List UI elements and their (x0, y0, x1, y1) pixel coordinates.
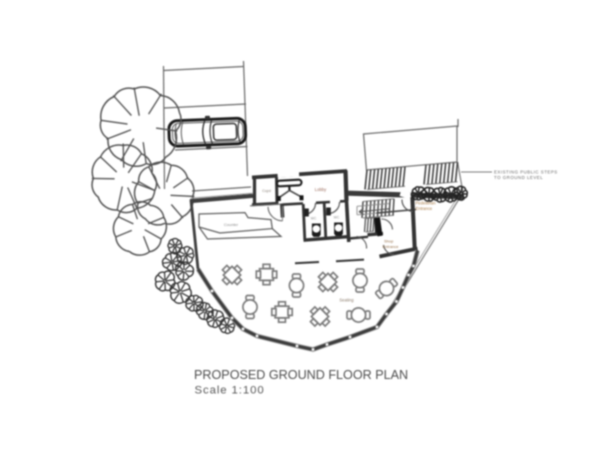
svg-text:WC: WC (334, 216, 340, 220)
svg-text:WC: WC (311, 217, 317, 221)
svg-text:Counter: Counter (224, 222, 239, 227)
svg-text:Entrance: Entrance (416, 206, 433, 211)
svg-text:Seating: Seating (339, 298, 354, 303)
svg-text:TO GROUND LEVEL: TO GROUND LEVEL (494, 175, 543, 180)
svg-text:Entrance: Entrance (383, 244, 400, 249)
svg-text:EXISTING PUBLIC STEPS: EXISTING PUBLIC STEPS (494, 169, 558, 174)
svg-text:PROPOSED GROUND FLOOR PLAN: PROPOSED GROUND FLOOR PLAN (194, 368, 408, 382)
svg-text:Cupd: Cupd (262, 189, 271, 193)
svg-text:Shop: Shop (384, 239, 394, 244)
svg-text:Scale 1:100: Scale 1:100 (195, 385, 265, 397)
svg-text:Lobby: Lobby (315, 187, 327, 192)
